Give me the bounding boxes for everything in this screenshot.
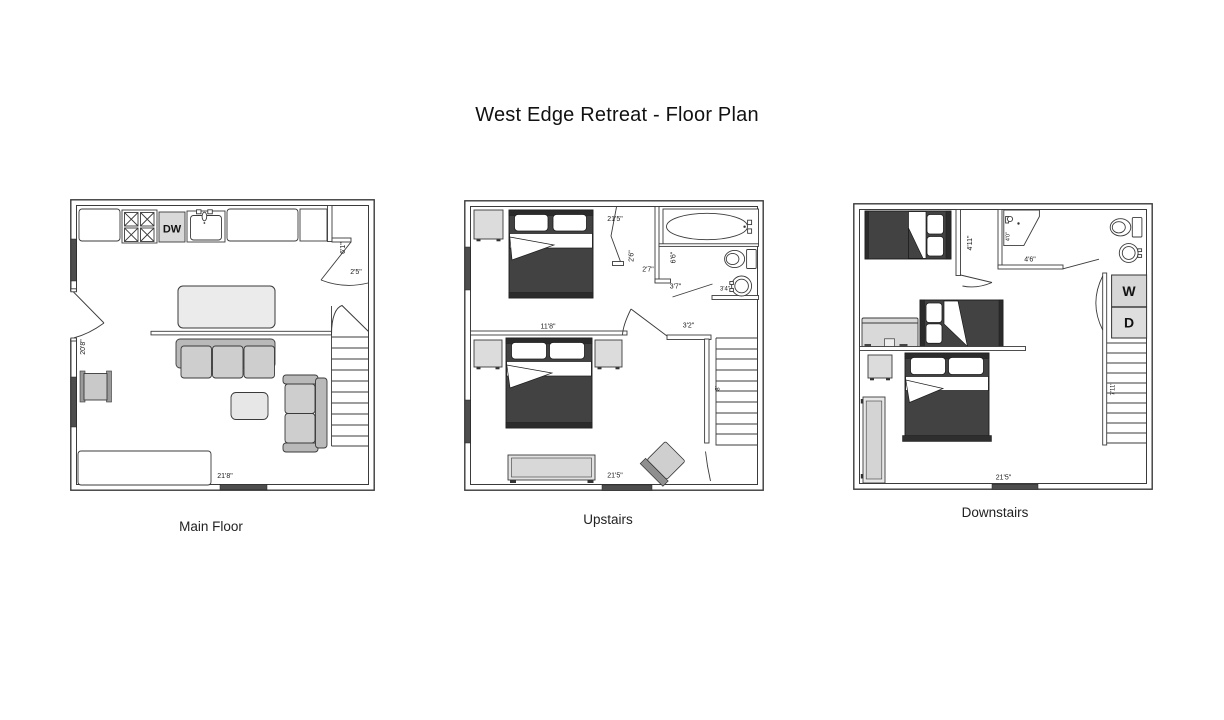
dimension-label: 21'5" — [607, 216, 623, 223]
floor-plan-document: West Edge Retreat - Floor Plan — [0, 0, 1224, 720]
room-divider — [860, 347, 1026, 351]
washer-unit: W — [1112, 275, 1147, 307]
dimension-label: 21'5" — [996, 475, 1012, 482]
dimension-label: 21'8" — [217, 473, 233, 480]
dishwasher-icon: DW — [159, 212, 185, 242]
dimension-label: 7'11" — [1111, 383, 1117, 396]
dimension-label: 6'6" — [671, 251, 678, 263]
armchair — [80, 371, 112, 402]
dimension-label: 2'6" — [629, 250, 636, 262]
window — [220, 484, 267, 490]
loveseat — [283, 375, 327, 452]
bed — [509, 210, 593, 298]
dimension-label: 2'7" — [642, 267, 654, 274]
dimension-label: 4'6" — [1024, 257, 1036, 264]
window — [465, 247, 471, 290]
window — [602, 485, 652, 491]
bedroom-wall — [471, 331, 628, 335]
media-console — [78, 451, 211, 485]
bed — [865, 211, 951, 259]
sofa — [176, 339, 275, 378]
stove-icon — [122, 210, 157, 243]
dimension-label: 3'2" — [683, 323, 695, 330]
upstairs-plan: 21'5" 2'6" 2'7" 6'6" 3'7" 3'4" 11'8" 3'2… — [464, 200, 764, 491]
bathtub-icon — [659, 209, 759, 246]
kitchen-counter-left — [79, 209, 120, 241]
nightstand — [474, 340, 502, 369]
dimension-label: 6'1" — [340, 242, 347, 254]
dimension-label: 3'7" — [670, 284, 682, 291]
dimension-label: 4'0" — [1006, 232, 1012, 241]
bench — [508, 455, 595, 483]
upstairs-drawing: 21'5" 2'6" 2'7" 6'6" 3'7" 3'4" 11'8" 3'2… — [464, 200, 764, 491]
nightstand — [595, 340, 622, 369]
wardrobe — [861, 397, 885, 483]
kitchen-counter-right — [227, 209, 327, 241]
storage-chest — [862, 318, 918, 347]
page-title: West Edge Retreat - Floor Plan — [10, 104, 1224, 127]
window — [465, 400, 471, 443]
dimension-label: 3'4" — [720, 287, 730, 293]
bed — [506, 338, 592, 428]
dryer-label: D — [1124, 315, 1134, 331]
dimension-label: 4'11" — [967, 235, 974, 250]
nightstand — [474, 210, 503, 241]
dimension-label: 21'5" — [607, 473, 623, 480]
main-floor-plan: DW — [70, 199, 375, 491]
ottoman — [231, 393, 268, 420]
washer-label: W — [1122, 283, 1136, 299]
breakfast-bar — [151, 331, 332, 335]
dimension-label: 8' — [716, 386, 722, 390]
downstairs-plan: 4'0" W — [853, 203, 1153, 490]
window — [71, 377, 77, 427]
nightstand — [868, 355, 892, 380]
dimension-label: 20'8" — [80, 339, 87, 355]
window — [71, 239, 77, 281]
dimension-label: 2'5" — [350, 269, 362, 276]
dishwasher-label: DW — [163, 224, 182, 236]
window — [992, 484, 1038, 489]
partition-wall — [956, 210, 961, 276]
downstairs-drawing: 4'0" W — [853, 203, 1153, 490]
upstairs-label: Upstairs — [583, 512, 633, 527]
bed — [920, 300, 1003, 347]
kitchen-sink-icon — [187, 210, 225, 242]
toilet-icon — [1110, 218, 1142, 237]
bed — [903, 353, 992, 442]
dimension-label: 11'8" — [541, 324, 556, 331]
main-floor-drawing: DW — [70, 199, 375, 491]
kitchen-island — [178, 286, 275, 328]
downstairs-label: Downstairs — [962, 505, 1029, 520]
dryer-unit: D — [1112, 307, 1147, 338]
toilet-icon — [725, 250, 757, 269]
main-floor-label: Main Floor — [179, 519, 243, 534]
